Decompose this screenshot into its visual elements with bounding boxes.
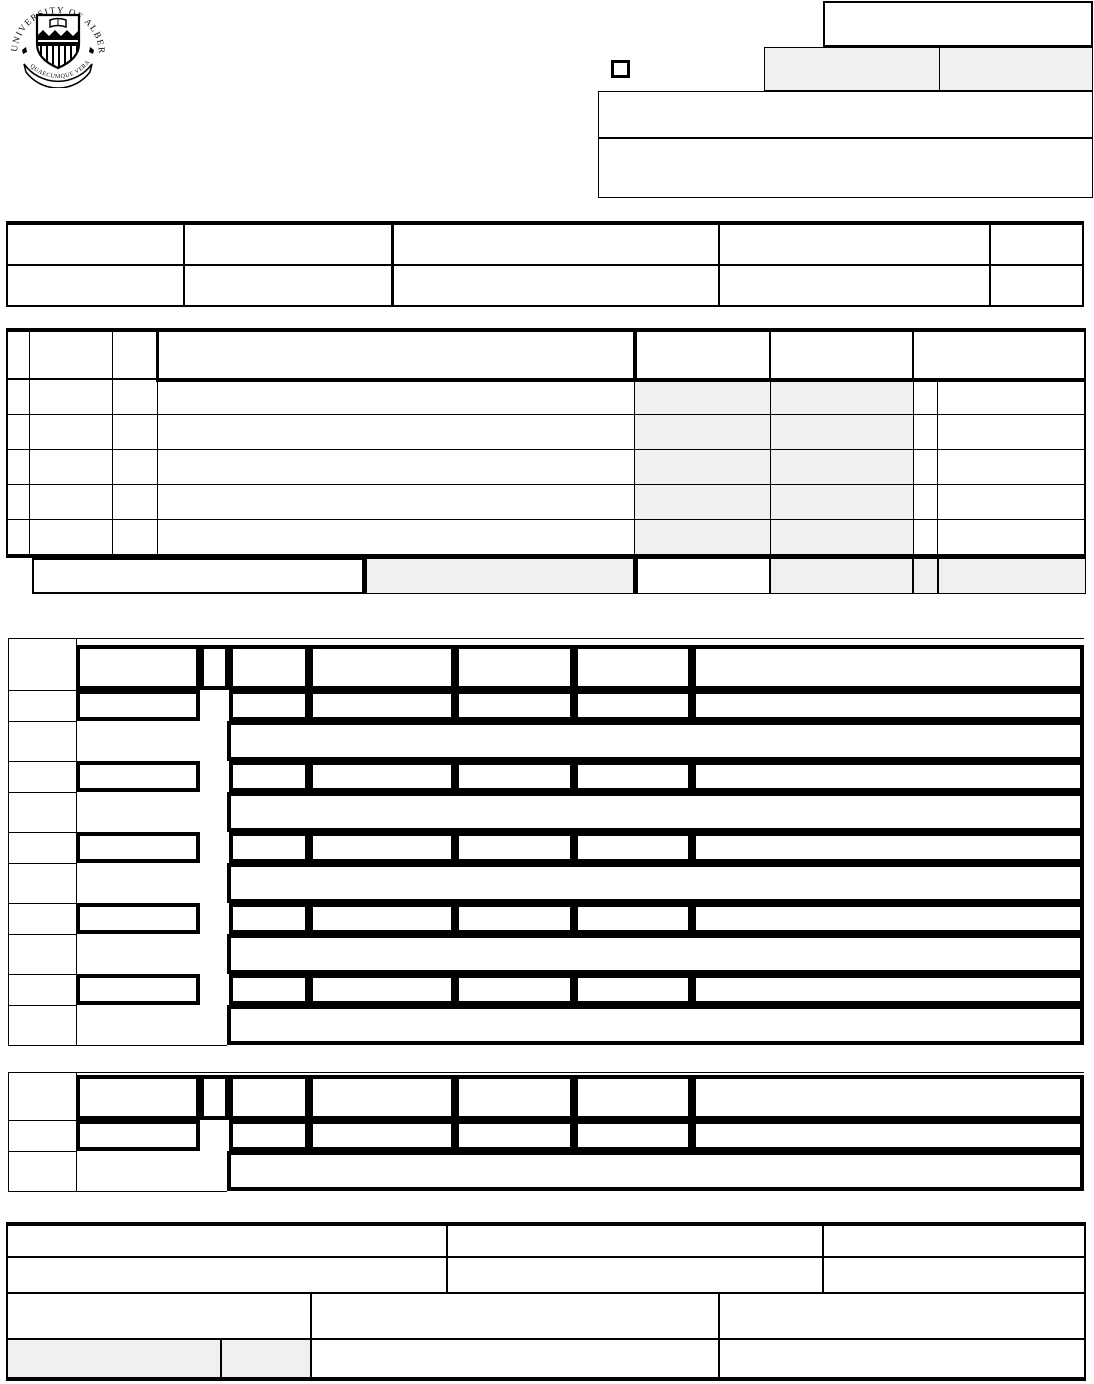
entry-grid-large-leftcol-left-line	[8, 638, 9, 1045]
detail-header-col-line-6	[912, 328, 914, 382]
detail-table-right-border	[1084, 328, 1086, 556]
entry-grid-large-entry4-field-1[interactable]	[76, 903, 200, 934]
info-table-col-line-3	[718, 221, 720, 307]
signature-shaded-cell-1[interactable]	[8, 1340, 220, 1377]
entry-grid-large-leftcol-row-line	[8, 974, 76, 975]
entry-grid-large-entry2-field-3[interactable]	[309, 761, 455, 792]
header-shaded-field-right[interactable]	[939, 47, 1093, 91]
header-small-top-field[interactable]	[823, 1, 1093, 47]
detail-footer-shaded-2[interactable]	[770, 558, 913, 594]
entry-grid-small-header-cell-5	[455, 1075, 574, 1120]
entry-grid-small-leftcol-row-line	[8, 1120, 76, 1121]
entry-grid-large-entry5-field-3[interactable]	[309, 974, 455, 1005]
entry-grid-large-leftcol-row-line	[8, 863, 76, 864]
entry-grid-large-top-line	[8, 638, 1084, 639]
entry-grid-large-entry1-field-5[interactable]	[574, 690, 692, 721]
entry-grid-small-header-cell-6	[574, 1075, 692, 1120]
detail-data-col-line-4	[634, 382, 635, 554]
info-table-row-separator	[6, 264, 1084, 266]
entry-grid-small-top-line	[8, 1072, 1084, 1073]
entry-grid-small-entry1-field-6[interactable]	[692, 1120, 1084, 1151]
entry-grid-large-leftcol-row-line	[8, 934, 76, 935]
entry-grid-small-header-cell-3	[229, 1075, 309, 1120]
entry-grid-small-leftcol-row-line	[8, 1151, 76, 1152]
form-page: UNIVERSITY OF ALBERTA QUAECUMQUE VERA	[0, 0, 1094, 1384]
entry-grid-large-entry1-description-field[interactable]	[227, 721, 1084, 761]
entry-grid-small-leftcol-left-line	[8, 1072, 9, 1191]
detail-data-col-line-6	[913, 382, 914, 554]
entry-grid-large-header-cell-6	[574, 645, 692, 690]
entry-grid-small-header-cell-2	[200, 1075, 229, 1120]
entry-grid-small-header-cell-1	[76, 1075, 200, 1120]
info-table-top-border-left	[6, 221, 391, 225]
detail-table-top-border	[6, 328, 1086, 332]
signature-table-right-border	[1084, 1222, 1086, 1381]
entry-grid-small-header-cell-7	[692, 1075, 1084, 1120]
info-table-col-line-1	[183, 221, 185, 307]
entry-grid-large-entry5-field-5[interactable]	[574, 974, 692, 1005]
detail-header-col-line-3	[156, 328, 159, 382]
detail-table-header-bottom-thick	[157, 378, 1086, 382]
detail-footer-thick-line-1	[362, 558, 367, 594]
entry-grid-large-leftcol-row-line	[8, 721, 76, 722]
detail-table-shaded-column-1	[635, 380, 770, 554]
detail-data-col-line-2	[112, 382, 113, 554]
entry-grid-large-entry3-field-5[interactable]	[574, 832, 692, 863]
entry-grid-large-entry5-description-field[interactable]	[227, 1005, 1084, 1045]
detail-footer-field-1[interactable]	[32, 558, 366, 594]
signature-row-separator-1	[6, 1256, 1086, 1258]
detail-header-col-line-2	[112, 328, 113, 382]
entry-grid-small-bottom-line	[8, 1191, 227, 1192]
entry-grid-large-entry3-field-3[interactable]	[309, 832, 455, 863]
entry-grid-large-entry3-description-field[interactable]	[227, 863, 1084, 903]
entry-grid-large-entry2-description-field[interactable]	[227, 792, 1084, 832]
detail-footer-shaded-4[interactable]	[938, 558, 1086, 594]
info-table-col-line-4	[989, 221, 991, 307]
header-shaded-field-left[interactable]	[764, 47, 941, 91]
header-wide-field-2[interactable]	[598, 138, 1093, 198]
entry-grid-large-entry4-field-4[interactable]	[455, 903, 574, 934]
signature-top-col-line-1	[446, 1226, 448, 1292]
entry-grid-large-entry5-field-4[interactable]	[455, 974, 574, 1005]
entry-grid-large-entry4-field-5[interactable]	[574, 903, 692, 934]
entry-grid-large-entry3-field-2[interactable]	[229, 832, 309, 863]
entry-grid-large-entry2-field-2[interactable]	[229, 761, 309, 792]
entry-grid-large-entry1-field-1[interactable]	[76, 690, 200, 721]
entry-grid-large-leftcol-row-line	[8, 690, 76, 691]
entry-grid-large-header-cell-5	[455, 645, 574, 690]
entry-grid-small-entry1-field-3[interactable]	[309, 1120, 455, 1151]
signature-table-left-border	[6, 1222, 8, 1381]
entry-grid-large-entry5-field-2[interactable]	[229, 974, 309, 1005]
entry-grid-large-entry1-field-4[interactable]	[455, 690, 574, 721]
entry-grid-large-leftcol-row-line	[8, 832, 76, 833]
entry-grid-large-entry3-field-1[interactable]	[76, 832, 200, 863]
detail-header-col-line-1	[29, 328, 30, 382]
detail-data-col-line-3	[157, 382, 158, 554]
signature-bottom-col-line-2	[718, 1292, 720, 1377]
entry-grid-large-leftcol-row-line	[8, 761, 76, 762]
detail-data-col-line-7	[937, 382, 938, 554]
detail-footer-field-2[interactable]	[635, 558, 770, 594]
signature-bottom-col-line-1	[310, 1292, 312, 1377]
entry-grid-large-entry3-field-6[interactable]	[692, 832, 1084, 863]
signature-top-col-line-2	[822, 1226, 824, 1292]
info-table-col-line-2	[391, 221, 394, 307]
entry-grid-small-entry1-field-1[interactable]	[76, 1120, 200, 1151]
entry-grid-large-leftcol-row-line	[8, 1005, 76, 1006]
signature-table-top-border	[6, 1222, 1086, 1226]
detail-data-row-separator-2	[6, 449, 1086, 450]
header-wide-field-1[interactable]	[598, 91, 1093, 138]
entry-grid-large-entry1-field-2[interactable]	[229, 690, 309, 721]
crest-right-leaf	[89, 47, 94, 54]
entry-grid-large-entry5-field-6[interactable]	[692, 974, 1084, 1005]
entry-grid-large-entry3-field-4[interactable]	[455, 832, 574, 863]
entry-grid-small-header-cell-4	[309, 1075, 455, 1120]
entry-grid-large-entry2-field-6[interactable]	[692, 761, 1084, 792]
entry-grid-large-header-cell-4	[309, 645, 455, 690]
detail-data-col-line-5	[770, 382, 771, 554]
header-checkbox[interactable]	[611, 60, 630, 78]
signature-row-separator-2	[6, 1292, 1086, 1294]
university-of-alberta-crest: UNIVERSITY OF ALBERTA QUAECUMQUE VERA	[10, 2, 106, 88]
entry-grid-large-header-cell-3	[229, 645, 309, 690]
detail-footer-shaded-1[interactable]	[366, 558, 635, 594]
detail-footer-thick-line-2	[633, 558, 638, 594]
crest-left-leaf	[22, 47, 27, 54]
entry-grid-large-entry4-description-field[interactable]	[227, 934, 1084, 974]
entry-grid-large-entry5-field-1[interactable]	[76, 974, 200, 1005]
entry-grid-large-leftcol-row-line	[8, 792, 76, 793]
detail-data-row-separator-4	[6, 519, 1086, 520]
entry-grid-large-entry4-field-3[interactable]	[309, 903, 455, 934]
entry-grid-large-header-cell-1	[76, 645, 200, 690]
detail-table-left-border	[6, 328, 8, 556]
entry-grid-small-entry1-field-2[interactable]	[229, 1120, 309, 1151]
detail-data-col-line-1	[29, 382, 30, 554]
entry-grid-large-header-cell-2	[200, 645, 229, 690]
signature-row4-col-line	[220, 1338, 222, 1377]
entry-grid-small-entry1-field-5[interactable]	[574, 1120, 692, 1151]
entry-grid-large-entry4-field-6[interactable]	[692, 903, 1084, 934]
entry-grid-large-entry1-field-6[interactable]	[692, 690, 1084, 721]
entry-grid-large-entry2-field-1[interactable]	[76, 761, 200, 792]
info-table-top-border-right	[394, 221, 1084, 225]
info-table-bottom-border	[6, 305, 1084, 307]
detail-footer-shaded-3[interactable]	[913, 558, 938, 594]
detail-header-col-line-4	[633, 328, 637, 382]
entry-grid-large-header-cell-7	[692, 645, 1084, 690]
detail-table-shaded-column-2	[771, 380, 913, 554]
detail-data-row-separator-1	[6, 414, 1086, 415]
signature-shaded-cell-2[interactable]	[222, 1340, 310, 1377]
entry-grid-large-entry2-field-4[interactable]	[455, 761, 574, 792]
entry-grid-large-entry2-field-5[interactable]	[574, 761, 692, 792]
detail-data-row-separator-3	[6, 484, 1086, 485]
detail-header-col-line-5	[769, 328, 771, 382]
entry-grid-small-entry1-description-field[interactable]	[227, 1151, 1084, 1191]
entry-grid-large-leftcol-row-line	[8, 903, 76, 904]
signature-row-separator-3	[6, 1338, 1086, 1340]
entry-grid-large-entry1-field-3[interactable]	[309, 690, 455, 721]
entry-grid-large-bottom-line	[8, 1045, 227, 1046]
entry-grid-large-entry4-field-2[interactable]	[229, 903, 309, 934]
signature-table-bottom-border	[6, 1377, 1086, 1381]
entry-grid-small-entry1-field-4[interactable]	[455, 1120, 574, 1151]
